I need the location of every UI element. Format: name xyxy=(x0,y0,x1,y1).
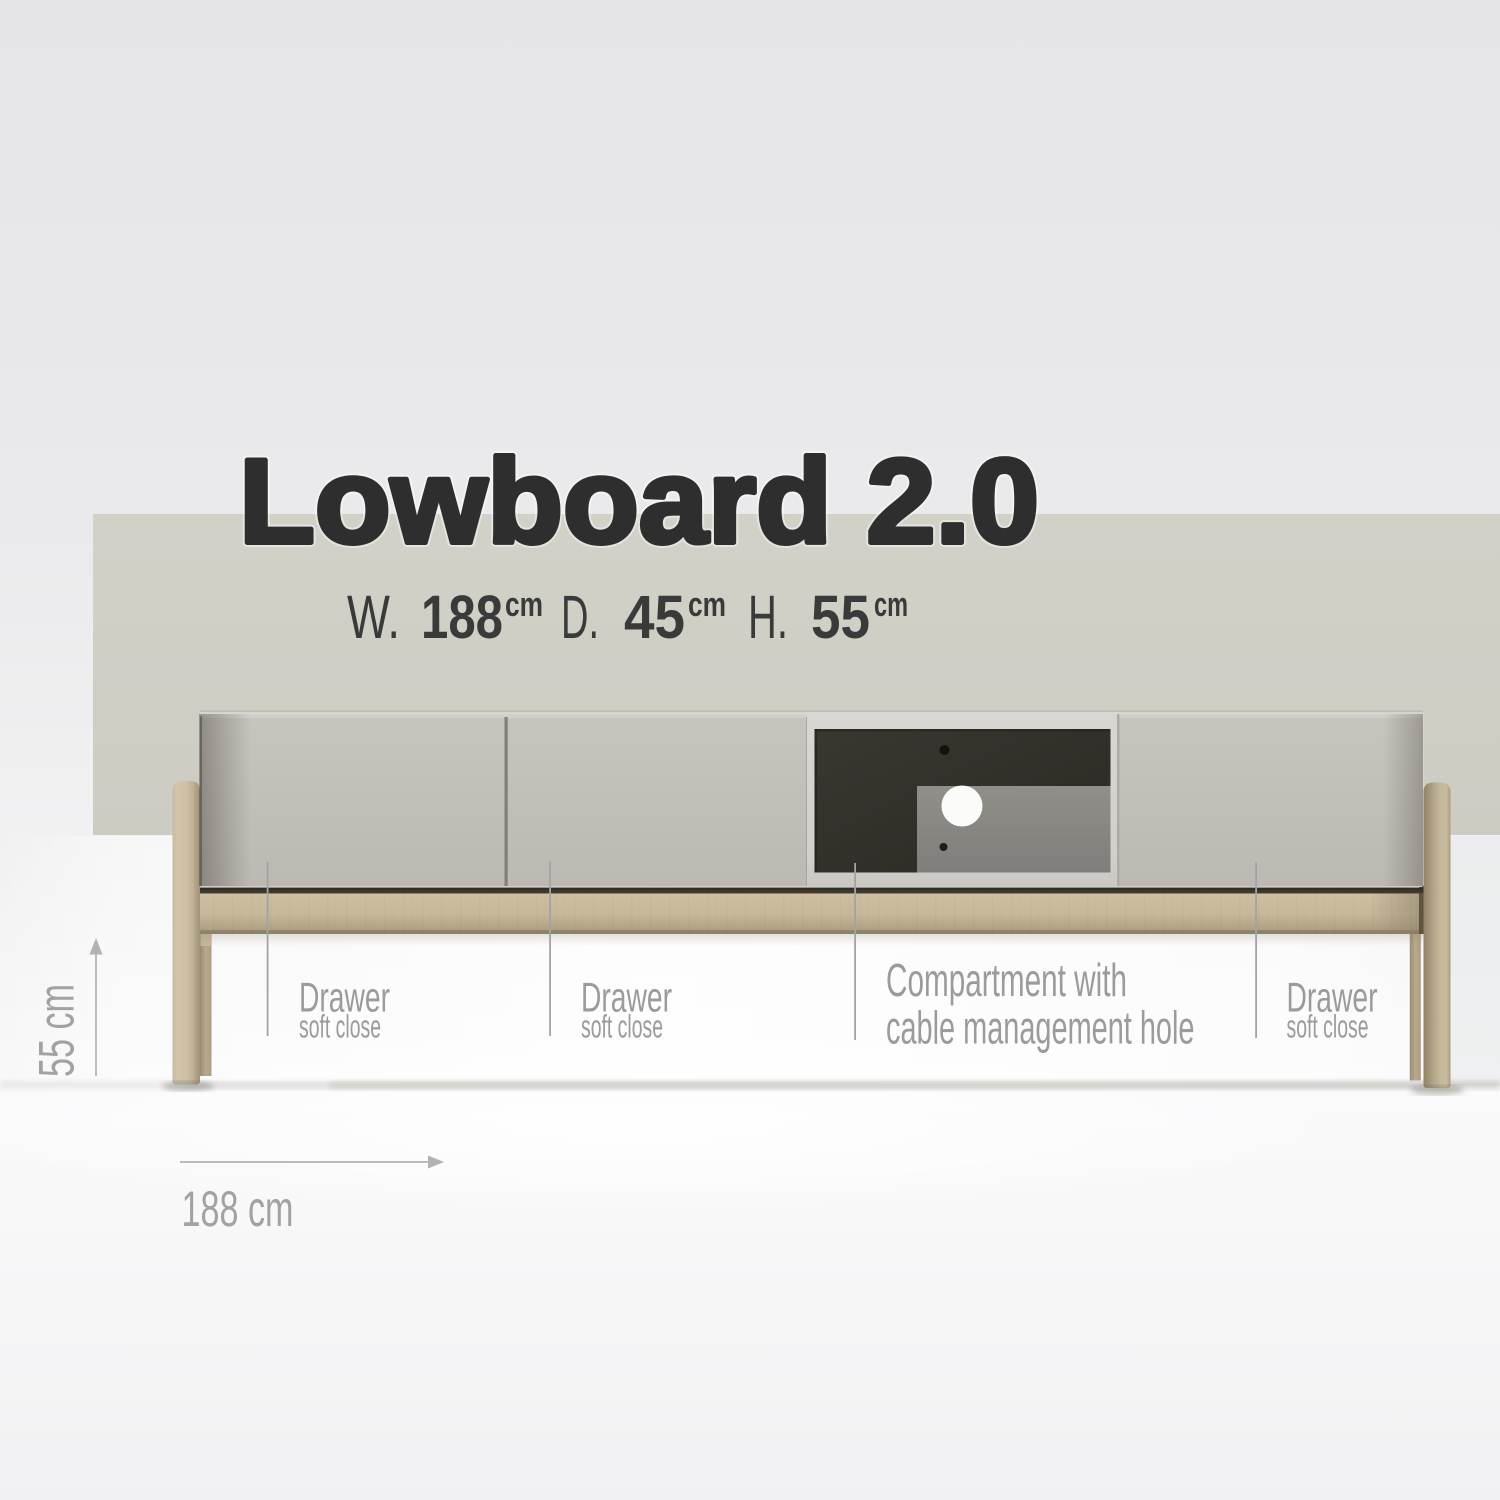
svg-text:W.: W. xyxy=(347,583,400,651)
svg-text:55 cm: 55 cm xyxy=(29,984,85,1077)
svg-text:45: 45 xyxy=(624,583,685,651)
svg-text:cm: cm xyxy=(874,586,908,624)
svg-text:188: 188 xyxy=(421,583,503,651)
svg-text:Lowboard 2.0: Lowboard 2.0 xyxy=(239,435,1039,569)
svg-text:55: 55 xyxy=(811,583,870,651)
svg-text:soft close: soft close xyxy=(581,1009,663,1045)
svg-text:Compartment with: Compartment with xyxy=(886,954,1127,1006)
svg-text:H.: H. xyxy=(748,583,788,651)
svg-text:soft close: soft close xyxy=(1287,1009,1369,1045)
svg-text:soft close: soft close xyxy=(299,1009,381,1045)
svg-text:188 cm: 188 cm xyxy=(182,1181,294,1237)
svg-text:cm: cm xyxy=(688,586,726,624)
svg-text:cm: cm xyxy=(505,586,543,624)
svg-text:D.: D. xyxy=(561,583,599,651)
svg-text:cable management hole: cable management hole xyxy=(886,1002,1195,1054)
